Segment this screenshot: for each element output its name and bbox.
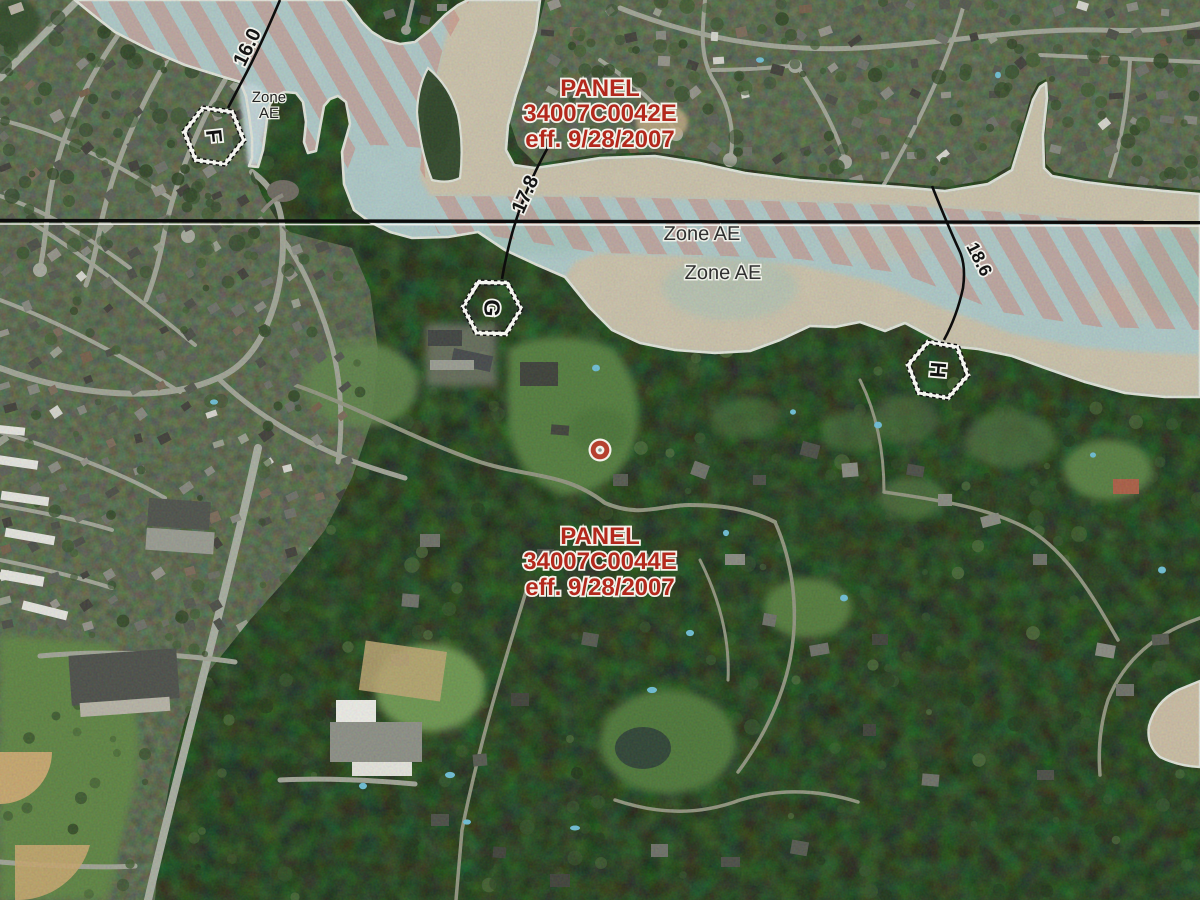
svg-text:AE: AE <box>259 105 279 122</box>
svg-text:Zone AE: Zone AE <box>685 262 762 284</box>
svg-text:Zone: Zone <box>252 89 286 106</box>
svg-text:PANEL: PANEL <box>560 75 640 102</box>
svg-text:eff. 9/28/2007: eff. 9/28/2007 <box>525 574 674 601</box>
svg-text:34007C0042E: 34007C0042E <box>523 100 676 127</box>
svg-text:G: G <box>479 298 505 317</box>
svg-text:F: F <box>201 128 227 144</box>
svg-text:eff. 9/28/2007: eff. 9/28/2007 <box>525 126 674 153</box>
svg-text:H: H <box>925 361 951 379</box>
svg-text:34007C0044E: 34007C0044E <box>523 548 676 575</box>
svg-text:PANEL: PANEL <box>560 523 640 550</box>
svg-text:Zone AE: Zone AE <box>664 223 741 245</box>
